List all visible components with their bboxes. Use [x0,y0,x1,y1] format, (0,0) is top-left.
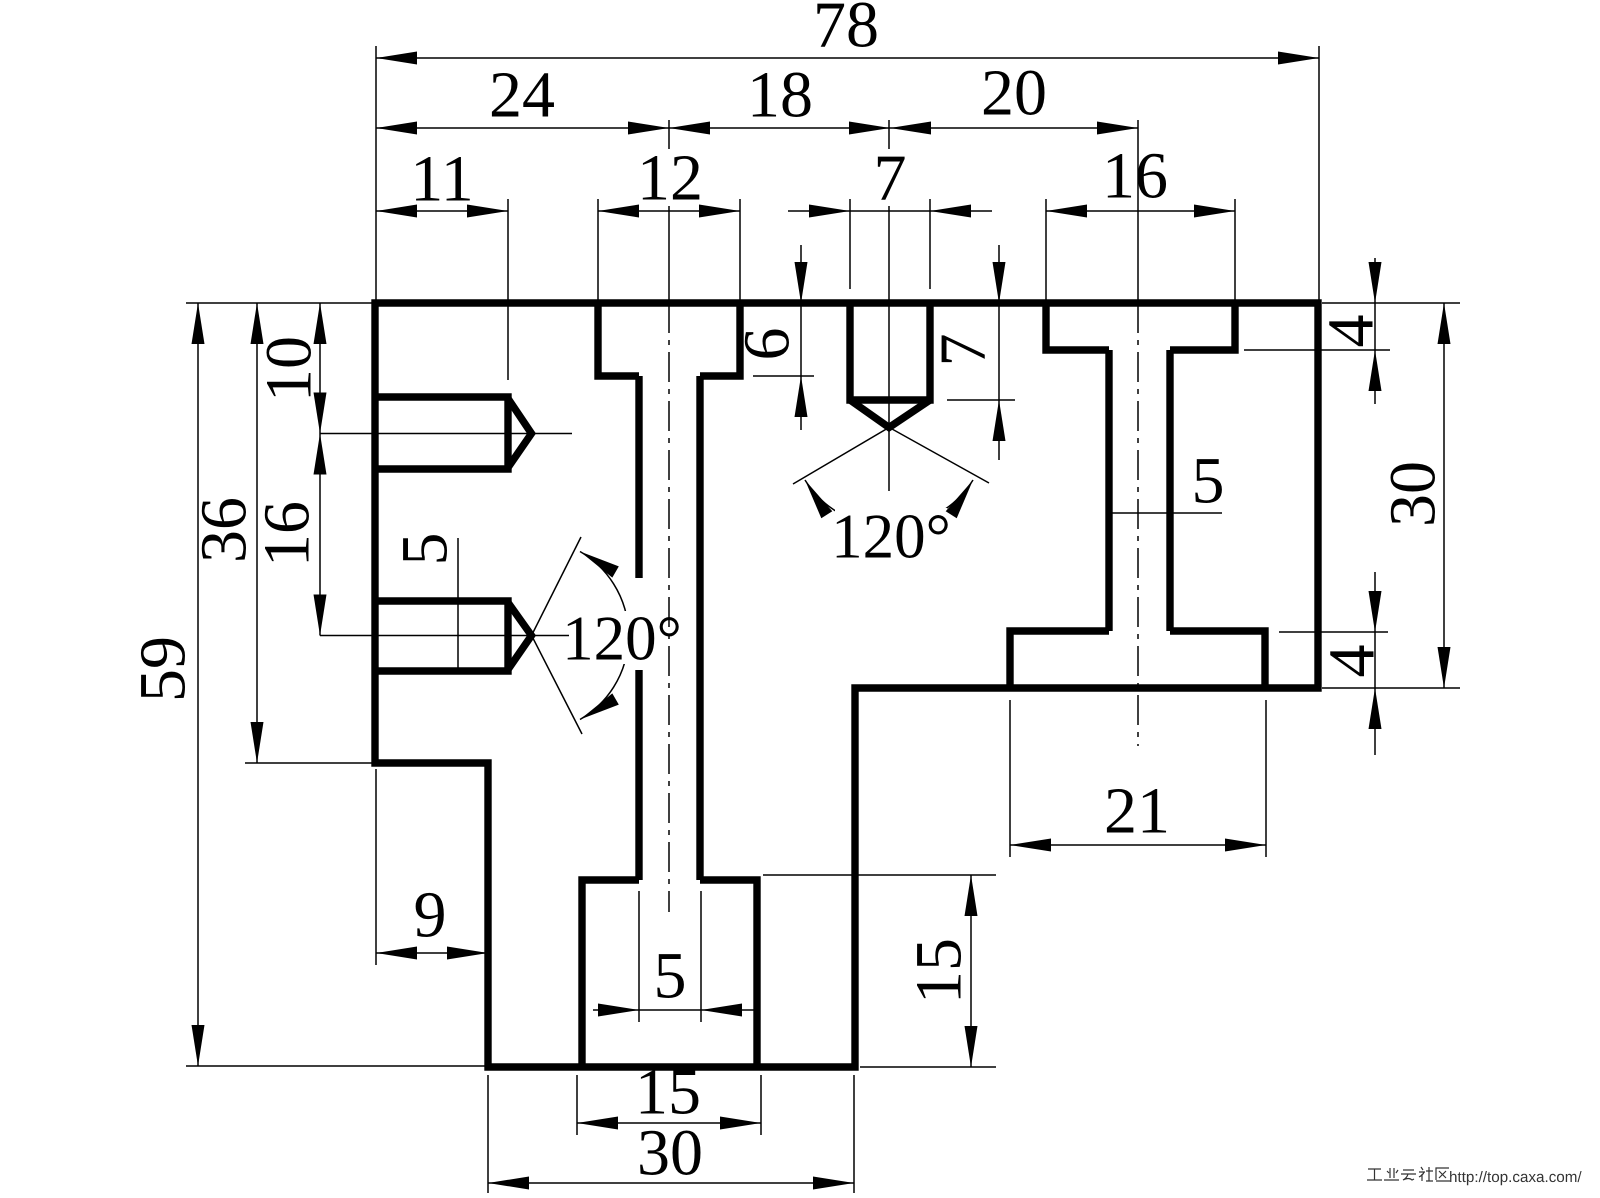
svg-text:59: 59 [127,636,200,702]
svg-text:10: 10 [253,336,326,402]
svg-text:11: 11 [410,143,474,216]
svg-text:12: 12 [637,142,703,215]
svg-text:30: 30 [637,1117,703,1190]
svg-text:7: 7 [927,334,1000,367]
svg-text:6: 6 [731,328,804,361]
svg-text:15: 15 [903,938,976,1004]
svg-text:4: 4 [1316,645,1389,678]
svg-text:30: 30 [1377,461,1450,527]
svg-text:4: 4 [1315,315,1388,348]
svg-text:21: 21 [1104,775,1170,848]
svg-text:120°: 120° [831,502,951,572]
svg-text:20: 20 [981,57,1047,130]
svg-text:5: 5 [1192,445,1225,518]
svg-text:120°: 120° [562,604,682,674]
svg-text:5: 5 [389,533,462,566]
svg-text:9: 9 [414,879,447,952]
svg-text:24: 24 [489,59,555,132]
svg-text:78: 78 [813,0,879,62]
svg-text:16: 16 [251,501,324,567]
svg-text:18: 18 [747,59,813,132]
svg-text:16: 16 [1102,140,1168,213]
svg-text:7: 7 [874,142,907,215]
svg-text:5: 5 [654,940,687,1013]
